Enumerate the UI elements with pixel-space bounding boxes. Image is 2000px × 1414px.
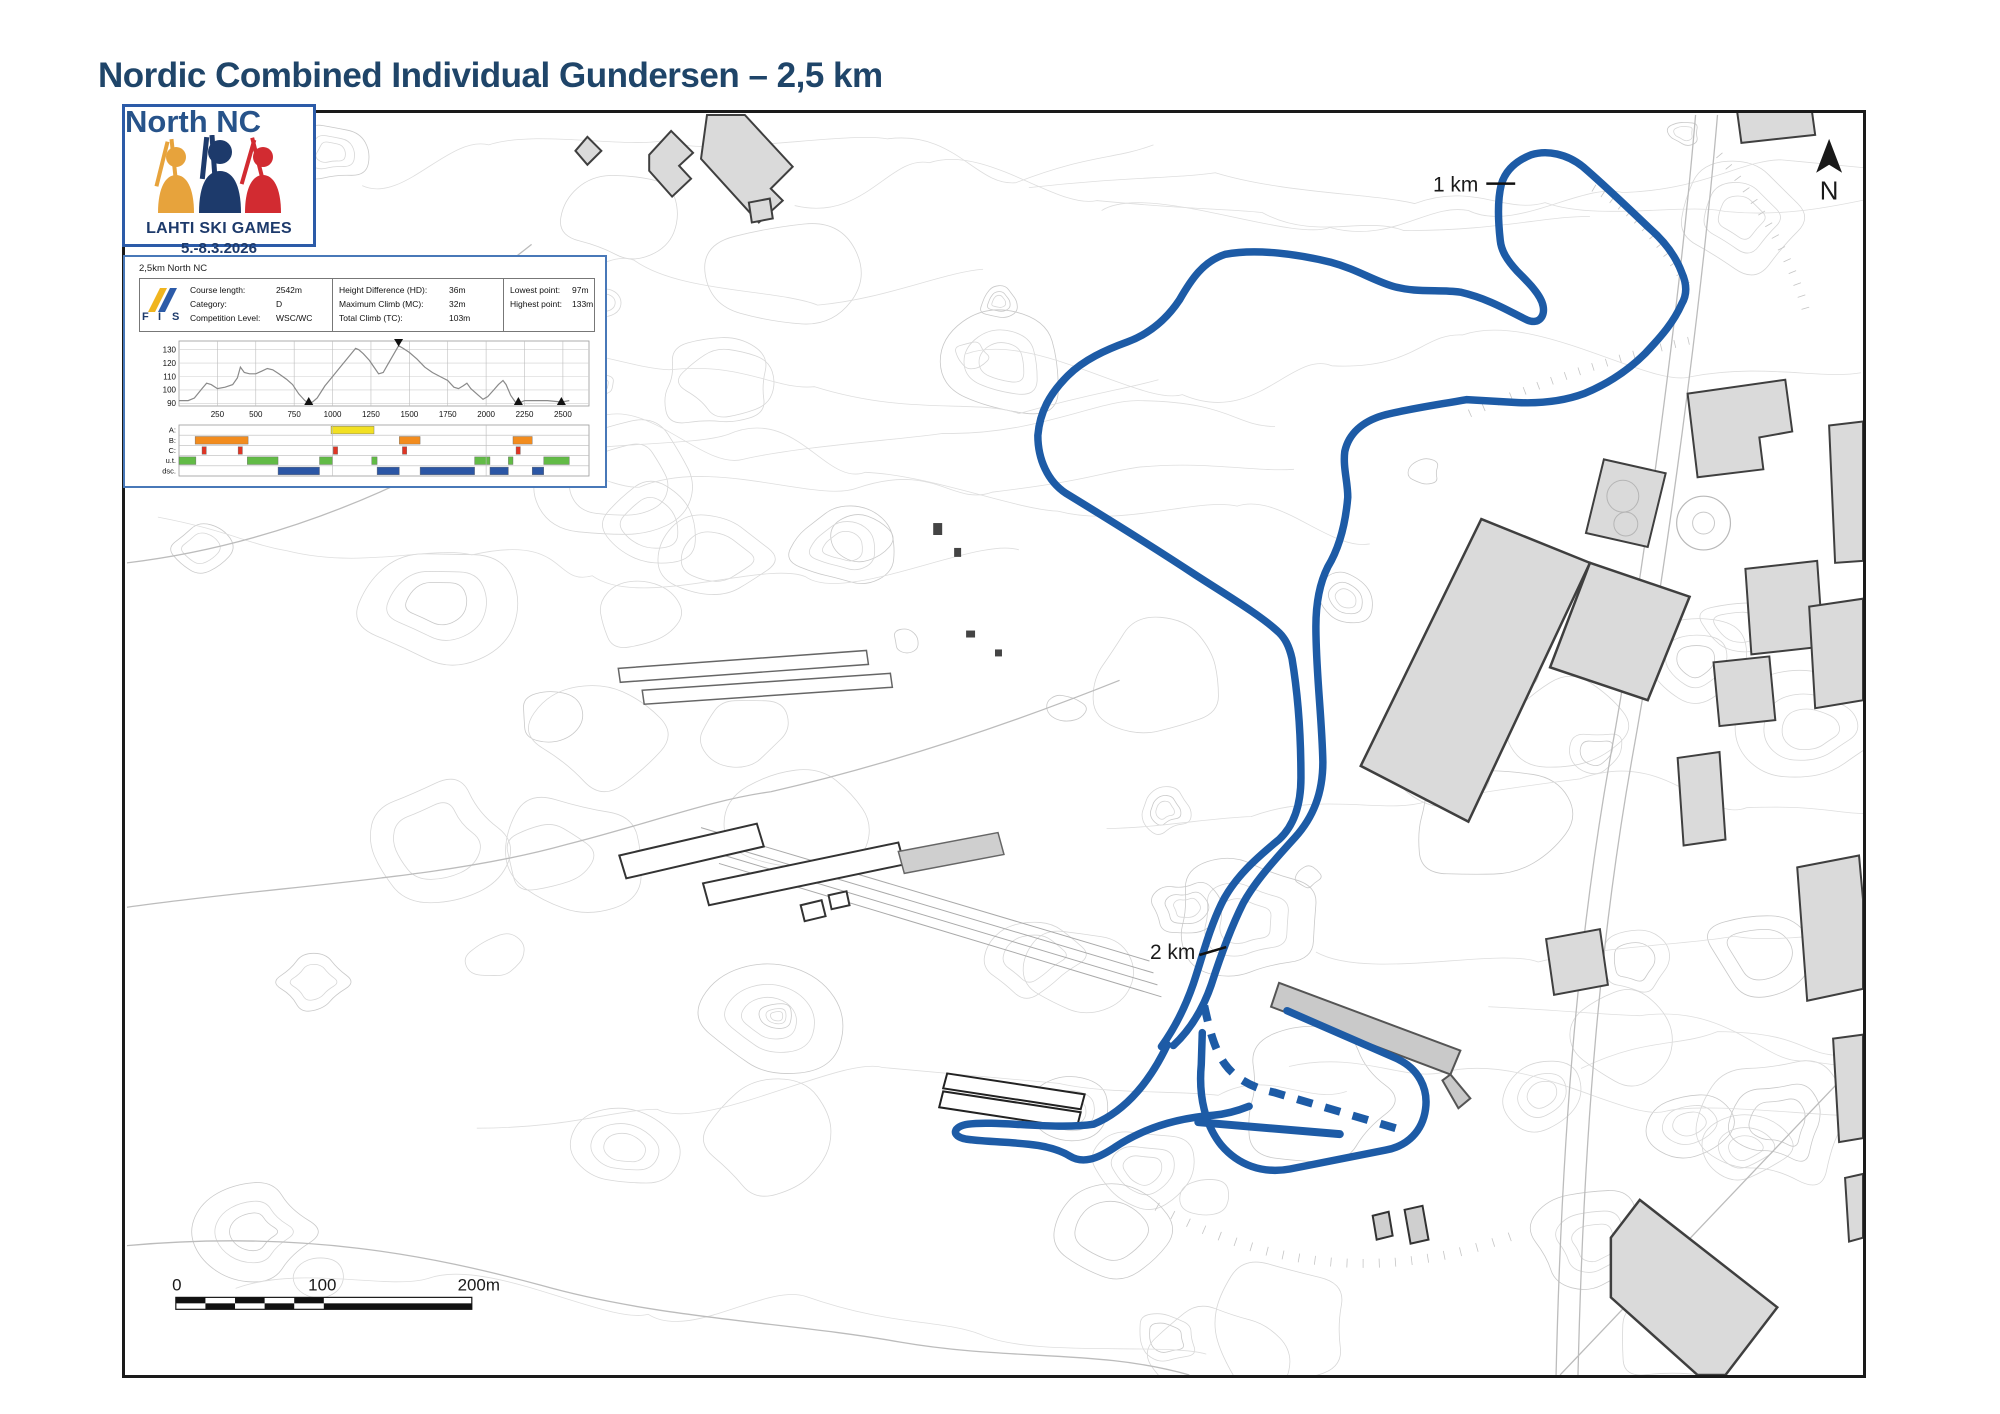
fis-stat-label: Highest point: bbox=[510, 297, 572, 311]
svg-text:120: 120 bbox=[163, 359, 177, 368]
fis-stat-row: Total Climb (TC):103m bbox=[339, 311, 497, 325]
north-label: N bbox=[1820, 178, 1839, 206]
fis-stat-row: Course length:2542m bbox=[190, 283, 326, 297]
course-map-page: Nordic Combined Individual Gundersen – 2… bbox=[0, 0, 2000, 1414]
scale-100: 100 bbox=[308, 1275, 336, 1294]
elevation-profile-chart: 9010011012013025050075010001250150017502… bbox=[139, 337, 595, 485]
fis-stat-value: 36m bbox=[449, 283, 466, 297]
svg-text:dsc.: dsc. bbox=[162, 466, 176, 475]
svg-text:F: F bbox=[142, 311, 149, 323]
fis-stat-value: 97m bbox=[572, 283, 589, 297]
building-zigzag-2 bbox=[701, 115, 793, 222]
fis-stat-row: Highest point:133m bbox=[510, 297, 614, 311]
fis-stat-row: Height Difference (HD):36m bbox=[339, 283, 497, 297]
svg-text:S: S bbox=[172, 311, 179, 323]
stadium-finish-straight bbox=[1198, 1122, 1340, 1134]
svg-text:u.t.: u.t. bbox=[166, 456, 176, 465]
course-heading: 2,5km North NC bbox=[139, 263, 207, 274]
svg-text:A:: A: bbox=[169, 426, 176, 435]
km1-label: 1 km bbox=[1433, 174, 1478, 197]
course-area-name: North NC bbox=[125, 104, 261, 140]
fis-stat-label: Maximum Climb (MC): bbox=[339, 297, 449, 311]
fis-stat-row: Competition Level:WSC/WC bbox=[190, 311, 326, 325]
svg-text:I: I bbox=[158, 311, 161, 323]
fis-stat-value: 133m bbox=[572, 297, 593, 311]
svg-text:1500: 1500 bbox=[400, 410, 418, 419]
svg-text:100: 100 bbox=[163, 386, 177, 395]
svg-text:110: 110 bbox=[163, 372, 176, 381]
grandstand-roof bbox=[1271, 983, 1460, 1075]
fis-columns: Course length:2542mCategory:DCompetition… bbox=[184, 279, 620, 331]
fis-stat-label: Competition Level: bbox=[190, 311, 276, 325]
page-title: Nordic Combined Individual Gundersen – 2… bbox=[98, 56, 883, 96]
svg-text:130: 130 bbox=[163, 346, 177, 355]
building-bottom-right bbox=[1611, 1200, 1777, 1375]
svg-text:1250: 1250 bbox=[362, 410, 380, 419]
svg-text:250: 250 bbox=[211, 410, 225, 419]
fis-stat-value: 2542m bbox=[276, 283, 302, 297]
svg-text:500: 500 bbox=[249, 410, 263, 419]
svg-text:750: 750 bbox=[287, 410, 301, 419]
buildings bbox=[575, 113, 1863, 1375]
fis-column: Height Difference (HD):36mMaximum Climb … bbox=[332, 279, 503, 331]
fis-stat-label: Lowest point: bbox=[510, 283, 572, 297]
scale-bar: 0 100 200m bbox=[172, 1275, 500, 1309]
fis-data-box: F I S Course length:2542mCategory:DCompe… bbox=[139, 278, 595, 332]
small-structures bbox=[933, 523, 1002, 656]
svg-text:C:: C: bbox=[169, 446, 177, 455]
svg-text:90: 90 bbox=[167, 399, 176, 408]
fis-stat-label: Height Difference (HD): bbox=[339, 283, 449, 297]
km2-label: 2 km bbox=[1150, 941, 1195, 964]
svg-text:1750: 1750 bbox=[439, 410, 457, 419]
scale-0: 0 bbox=[172, 1275, 181, 1294]
building-zigzag-1 bbox=[649, 131, 693, 197]
event-dates: 5.-8.3.2026 bbox=[125, 240, 313, 257]
svg-text:1000: 1000 bbox=[324, 410, 342, 419]
fis-stat-value: WSC/WC bbox=[276, 311, 312, 325]
fis-stat-row: Category:D bbox=[190, 297, 326, 311]
event-name: LAHTI SKI GAMES bbox=[125, 220, 313, 238]
fis-column: Lowest point:97mHighest point:133m bbox=[503, 279, 620, 331]
svg-text:B:: B: bbox=[169, 436, 176, 445]
fis-stat-value: 103m bbox=[449, 311, 470, 325]
skier-figures-icon bbox=[125, 135, 313, 218]
scale-200: 200m bbox=[458, 1275, 500, 1294]
building-small-top bbox=[749, 199, 773, 223]
svg-text:2000: 2000 bbox=[477, 410, 495, 419]
fis-stat-label: Category: bbox=[190, 297, 276, 311]
svg-text:2250: 2250 bbox=[516, 410, 534, 419]
fis-stat-label: Course length: bbox=[190, 283, 276, 297]
fis-column: Course length:2542mCategory:DCompetition… bbox=[184, 279, 332, 331]
fis-stat-value: D bbox=[276, 297, 282, 311]
fis-stat-row: Maximum Climb (MC):32m bbox=[339, 297, 497, 311]
fis-stat-label: Total Climb (TC): bbox=[339, 311, 449, 325]
svg-text:2500: 2500 bbox=[554, 410, 572, 419]
north-arrow: N bbox=[1816, 139, 1842, 206]
fis-stat-value: 32m bbox=[449, 297, 466, 311]
course-info-panel: 2,5km North NC F I S Course length:2542m… bbox=[123, 255, 607, 488]
fis-logo-icon: F I S bbox=[140, 279, 184, 331]
fis-stat-row: Lowest point:97m bbox=[510, 283, 614, 297]
